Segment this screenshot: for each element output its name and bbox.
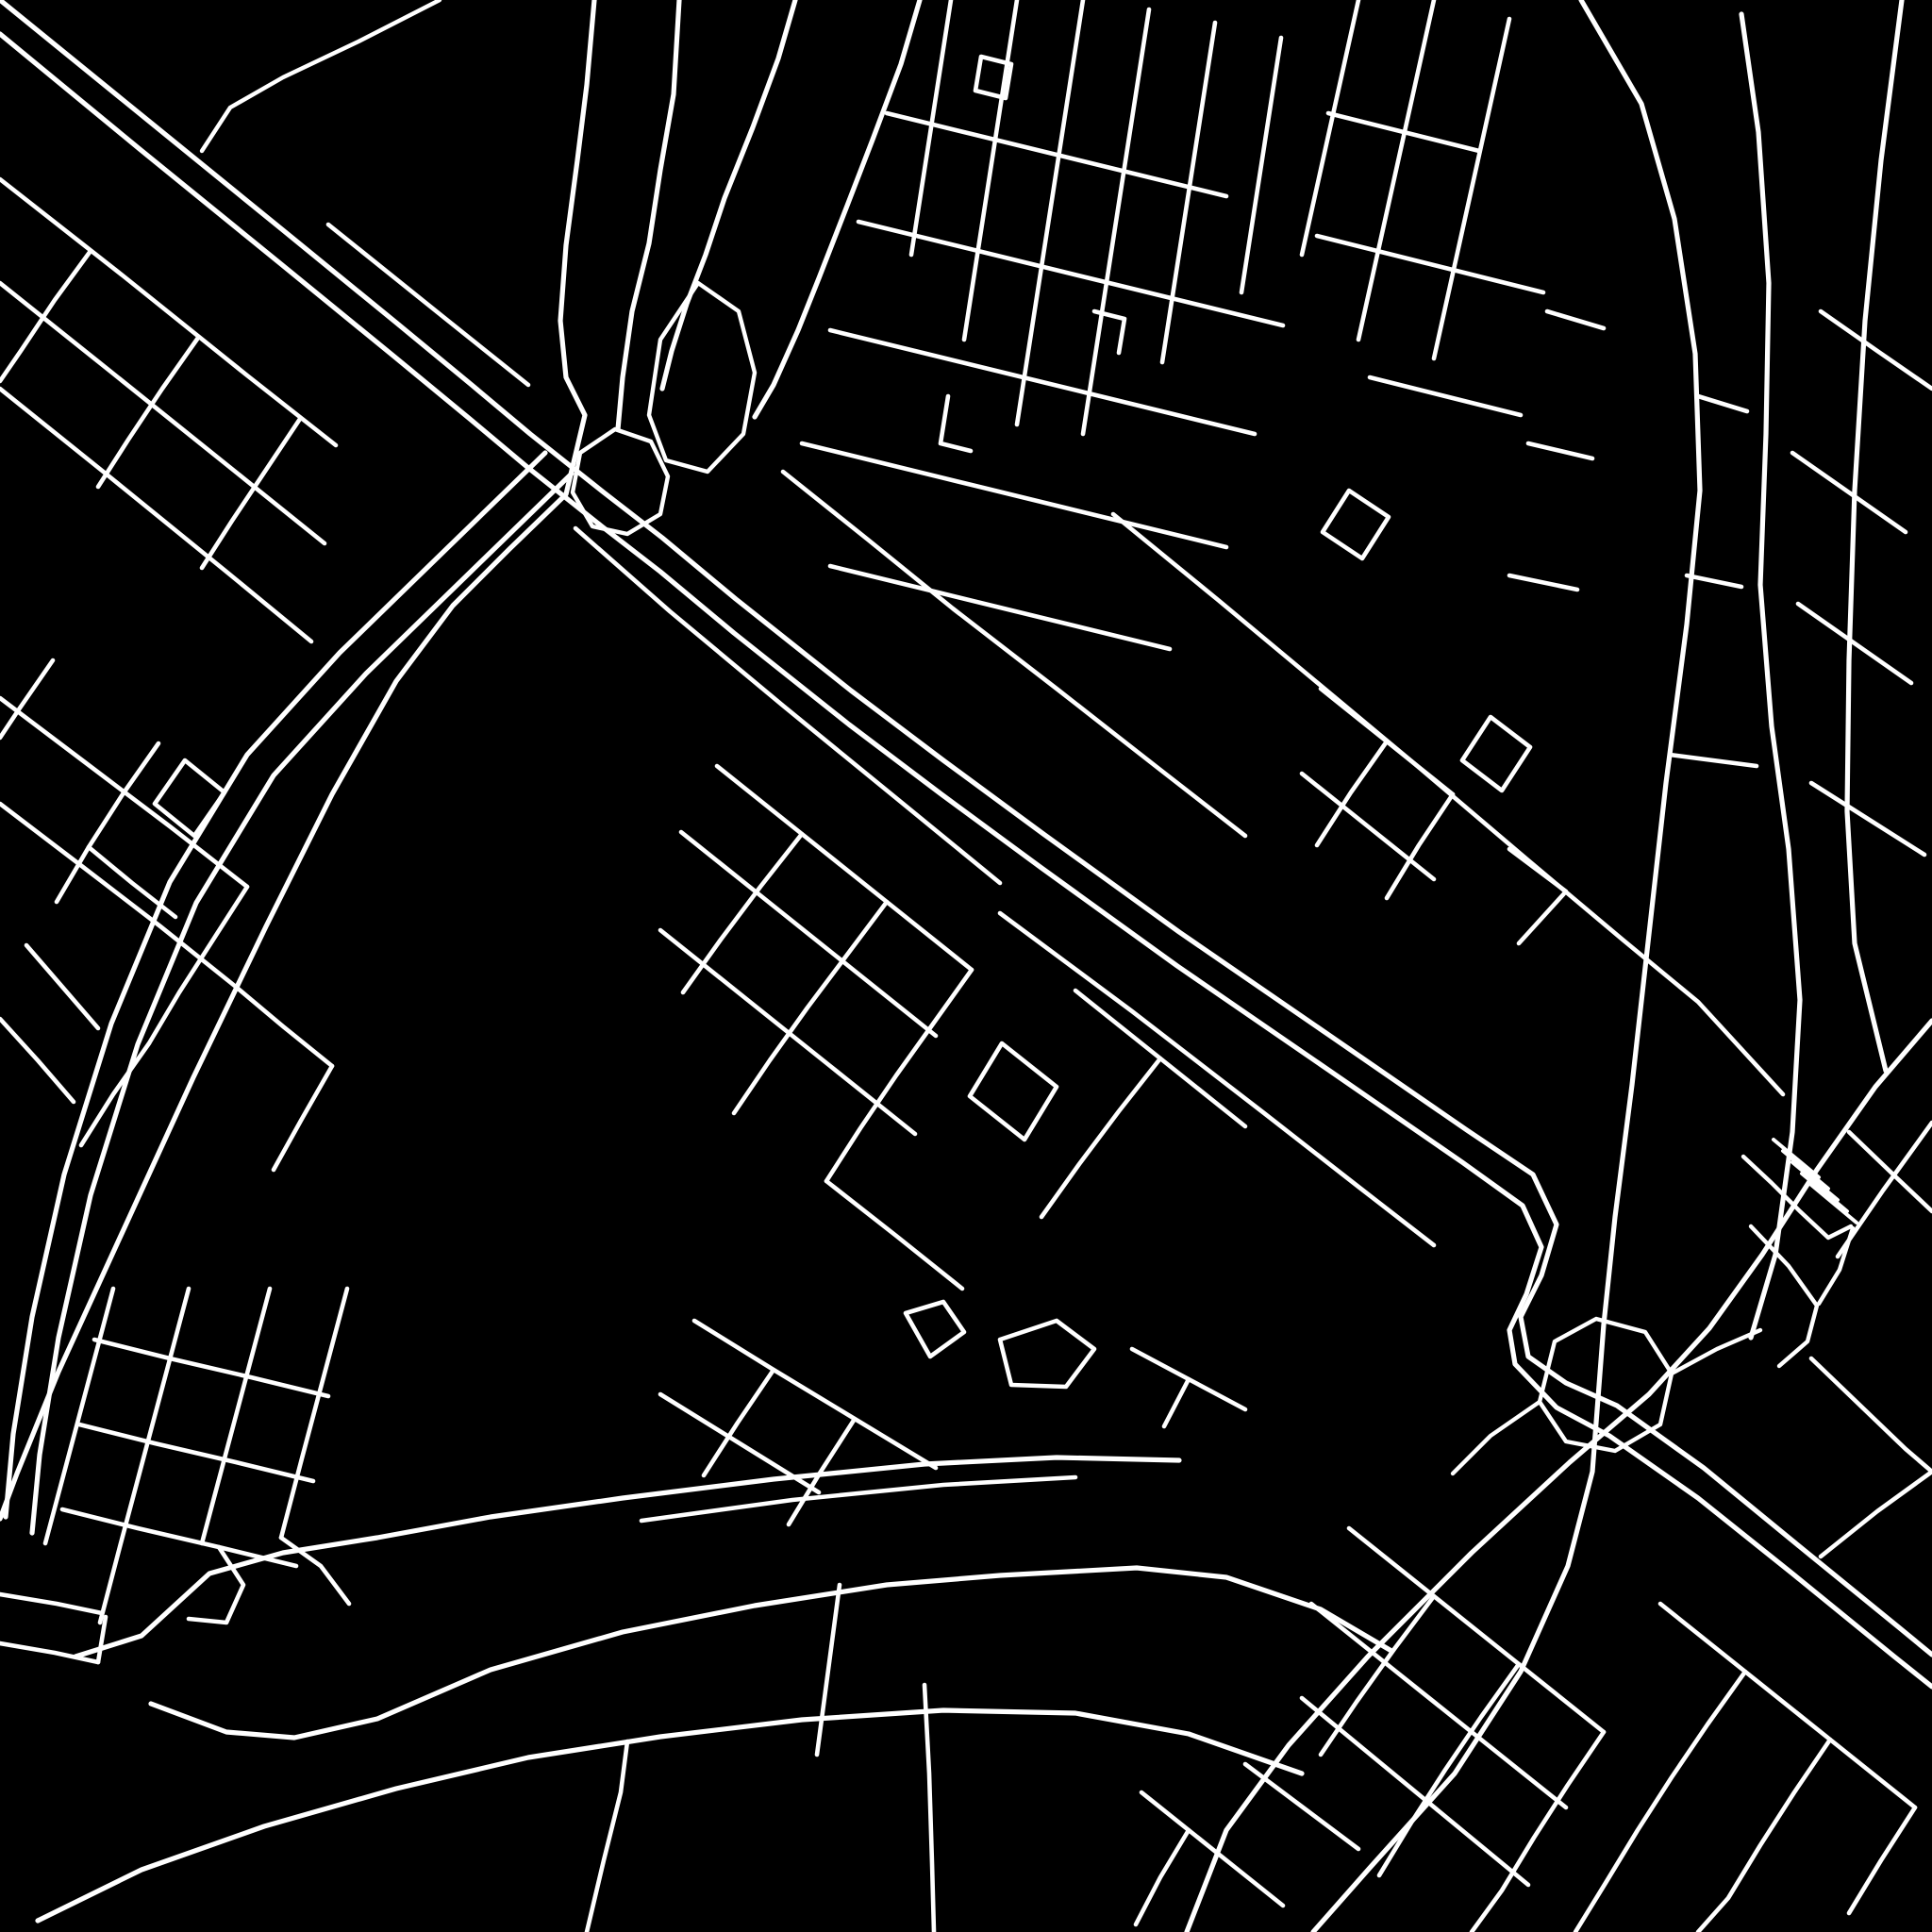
- road-south-sweep-road-2: [151, 1568, 1391, 1738]
- road-br-cross-6: [1849, 1807, 1915, 1913]
- road-tr-loop: [1323, 491, 1389, 558]
- road-south-branch-to-bottom: [587, 1741, 627, 1932]
- road-tr-h-3: [1370, 377, 1521, 415]
- road-sc-street-2: [660, 1394, 819, 1492]
- map-stage: [0, 0, 1932, 1932]
- road-south-sweep-road-1: [75, 1457, 1179, 1657]
- road-mr-street-2: [1302, 774, 1434, 879]
- road-cs-street-4: [826, 1181, 962, 1289]
- road-grid-h-3: [830, 330, 1255, 434]
- road-br-street-3: [1302, 1698, 1528, 1885]
- road-lm-diag-1: [26, 945, 98, 1028]
- road-bl-street-4: [281, 1289, 347, 1538]
- road-south-sweep-twin: [641, 1477, 1075, 1521]
- road-br-cross-3: [1472, 1732, 1604, 1932]
- road-br-cross-5: [1698, 1740, 1830, 1932]
- road-bl-street-3: [202, 1289, 270, 1543]
- road-bc-street-1: [817, 1585, 840, 1755]
- road-main-dual-carriageway-sw: [0, 34, 1932, 1687]
- road-grid-v-6: [1241, 38, 1281, 292]
- road-cs-cross-3: [826, 970, 972, 1181]
- road-tr-v-2: [1358, 0, 1434, 340]
- road-me-street-3: [1798, 604, 1911, 683]
- road-bc-street-3: [1141, 1792, 1283, 1906]
- road-bc-street-4: [1245, 1764, 1358, 1849]
- road-tr-conn-2: [1528, 443, 1592, 458]
- road-lm-cross-2: [57, 743, 158, 902]
- road-lm-cross-1: [0, 660, 53, 738]
- road-yard-track-4: [1802, 1174, 1847, 1211]
- road-cs-cross-4: [1041, 1058, 1160, 1217]
- road-east-edge-curve: [1847, 0, 1902, 1071]
- road-avenue-corridor-mid: [662, 0, 795, 389]
- road-tr-conn-1: [1547, 311, 1604, 328]
- road-re-cross-1: [1838, 1123, 1932, 1257]
- road-se-slip-road-2: [1453, 1402, 1540, 1474]
- road-north-south-road: [0, 0, 594, 1519]
- road-grid-stub-2: [941, 396, 971, 451]
- road-me-conn-2: [1687, 575, 1741, 587]
- road-bl-cross-2: [79, 1424, 313, 1481]
- road-yard-track-5: [1811, 1185, 1857, 1223]
- road-sc-cross-3: [1164, 1379, 1189, 1426]
- road-grid-v-4: [1083, 9, 1149, 434]
- road-be-stub-1: [0, 1594, 102, 1613]
- road-bc-cross-1: [1136, 1830, 1189, 1924]
- road-grid-v-3: [1017, 0, 1083, 425]
- road-me-conn-3: [1670, 755, 1757, 766]
- road-frontage-ne: [783, 472, 1245, 836]
- road-lm-street-3: [236, 987, 332, 1066]
- road-grid-h-2: [858, 222, 1283, 325]
- road-me-street-1: [1821, 311, 1932, 389]
- road-me-street-4: [1811, 783, 1924, 855]
- road-tr-h-2: [1317, 236, 1543, 292]
- road-grid-h-5: [830, 566, 1170, 649]
- road-bc-street-2: [924, 1685, 934, 1932]
- road-avenue-corridor-east: [755, 0, 920, 417]
- road-map-canvas[interactable]: [0, 0, 1932, 1932]
- road-tr-v-3: [1434, 19, 1509, 358]
- road-bl-street-2: [100, 1289, 189, 1623]
- road-br-street-4: [1660, 1604, 1915, 1807]
- road-frontage-sw: [575, 528, 1000, 883]
- road-tl-street-3: [0, 389, 311, 641]
- road-south-sweep-road-3: [38, 1710, 1302, 1921]
- road-grid-h-4: [802, 443, 1226, 547]
- road-br-diag: [1821, 1472, 1932, 1557]
- road-mr-cross-2: [1387, 794, 1453, 898]
- road-tr-conn-3: [1509, 575, 1577, 590]
- road-tl-cross-2: [98, 338, 198, 487]
- road-mr-hook: [1509, 849, 1566, 943]
- road-br-cross-4: [1575, 1672, 1745, 1932]
- road-tr-v-1: [1302, 0, 1358, 255]
- road-br-street-1: [1349, 1528, 1604, 1732]
- road-frontage-sw-2: [1000, 913, 1434, 1245]
- road-lm-cross-4: [274, 1066, 332, 1170]
- road-sc-loop-2: [1000, 1321, 1094, 1387]
- road-tl-street-1: [0, 179, 336, 445]
- road-lm-diag-2: [0, 1019, 74, 1102]
- road-sc-loop-1: [906, 1302, 964, 1357]
- road-grid-v-2: [964, 0, 1017, 340]
- road-re-street-2: [1811, 1358, 1932, 1472]
- road-sc-street-1: [694, 1321, 936, 1468]
- road-tl-cross-1: [0, 251, 91, 381]
- road-tl-cross-3: [202, 419, 300, 568]
- road-nw-parallel-street: [328, 225, 528, 385]
- road-br-cross-2: [1379, 1664, 1519, 1875]
- road-tl-street-2: [0, 283, 325, 543]
- road-cs-loop: [970, 1043, 1057, 1140]
- road-yard-track-1: [1774, 1140, 1819, 1177]
- road-bl-cross-1: [94, 1340, 328, 1396]
- road-mr-loop: [1462, 717, 1530, 791]
- road-bl-cross-3: [62, 1509, 296, 1566]
- road-re-street-1: [1849, 1132, 1932, 1211]
- road-me-conn-1: [1698, 396, 1747, 411]
- road-east-curve-avenue: [1741, 14, 1800, 1338]
- road-cs-street-1: [717, 766, 972, 970]
- road-nw-merge-ramp: [202, 0, 440, 151]
- road-me-street-2: [1792, 453, 1906, 532]
